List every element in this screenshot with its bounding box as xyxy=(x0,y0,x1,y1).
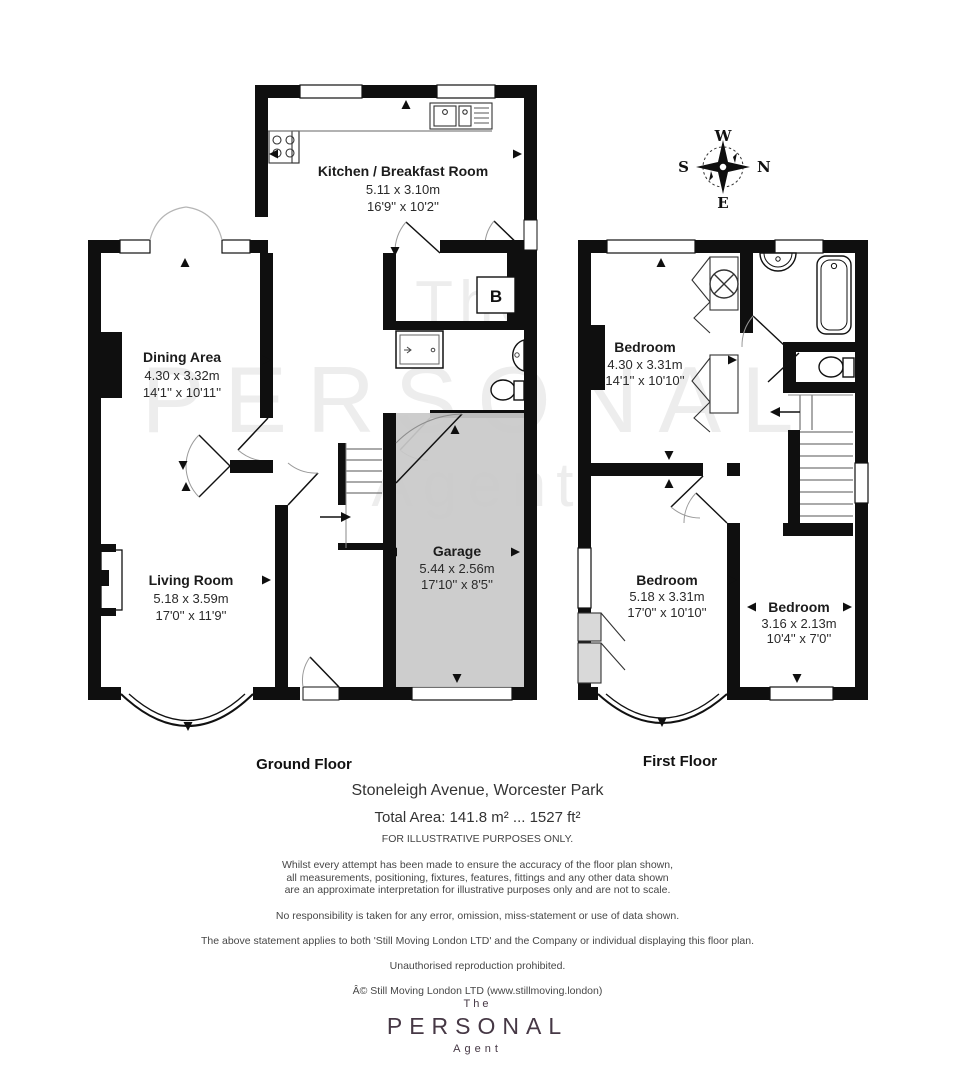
first-floor-plan xyxy=(578,240,868,727)
stairs-first xyxy=(770,395,853,536)
wardrobe-icons xyxy=(692,257,738,432)
stairs-down-arrow xyxy=(770,407,780,417)
logo-personal: PERSONAL xyxy=(0,1013,955,1040)
svg-text:4.30 x 3.32m: 4.30 x 3.32m xyxy=(144,368,219,383)
svg-text:14'1'' x 10'10'': 14'1'' x 10'10'' xyxy=(605,373,684,388)
disclaimer-responsibility: No responsibility is taken for any error… xyxy=(0,910,955,922)
stairs-ground xyxy=(320,443,386,550)
svg-text:5.11 x 3.10m: 5.11 x 3.10m xyxy=(366,182,440,197)
disclaimer-paragraph: Whilst every attempt has been made to en… xyxy=(0,859,955,897)
svg-text:17'0'' x 10'10'': 17'0'' x 10'10'' xyxy=(627,605,706,620)
door-kitchen-hall xyxy=(395,222,440,253)
boiler-room xyxy=(383,253,524,330)
chimney-breast-first xyxy=(591,325,605,390)
label-boiler: B xyxy=(490,287,502,306)
copyright-line: Â© Still Moving London LTD (www.stillmov… xyxy=(0,985,955,997)
compass-w: W xyxy=(714,127,733,145)
sink-icon xyxy=(513,340,524,371)
svg-text:17'10'' x 8'5'': 17'10'' x 8'5'' xyxy=(421,577,493,592)
compass-e: E xyxy=(717,194,728,212)
label-dining: Dining Area xyxy=(143,349,221,365)
door-bedroom2 xyxy=(684,493,727,523)
logo-agent: Agent xyxy=(0,1043,955,1055)
bay-window-ground xyxy=(121,694,253,726)
svg-text:5.18 x 3.59m: 5.18 x 3.59m xyxy=(153,591,228,606)
personal-agent-logo: The PERSONAL Agent xyxy=(0,998,955,1055)
label-bedroom2: Bedroom xyxy=(636,572,697,588)
label-living: Living Room xyxy=(149,572,234,588)
svg-text:4.30 x 3.31m: 4.30 x 3.31m xyxy=(607,357,682,372)
garage-door xyxy=(412,687,512,700)
double-doors-dining-living xyxy=(186,435,230,497)
svg-text:17'0'' x 11'9'': 17'0'' x 11'9'' xyxy=(155,608,226,623)
ground-floor-label: Ground Floor xyxy=(256,756,352,773)
svg-text:16'9'' x 10'2'': 16'9'' x 10'2'' xyxy=(367,199,439,214)
label-kitchen: Kitchen / Breakfast Room xyxy=(318,163,488,179)
logo-the: The xyxy=(0,998,955,1010)
compass-n: N xyxy=(757,158,771,176)
door-bedroom1 xyxy=(671,476,703,518)
floorplan-page: The PERSONAL Agent xyxy=(0,0,955,1080)
svg-text:14'1'' x 10'11'': 14'1'' x 10'11'' xyxy=(143,385,221,400)
fireplace xyxy=(101,544,122,616)
disclaimer-reproduction: Unauthorised reproduction prohibited. xyxy=(0,960,955,972)
compass-s: S xyxy=(678,158,689,176)
svg-text:3.16 x 2.13m: 3.16 x 2.13m xyxy=(761,616,836,631)
shower-icon xyxy=(396,331,443,368)
total-area: Total Area: 141.8 m² ... 1527 ft² xyxy=(0,809,955,826)
toilet-icon xyxy=(491,380,524,400)
bathroom-sink-icon xyxy=(760,253,796,271)
illustrative-note: FOR ILLUSTRATIVE PURPOSES ONLY. xyxy=(0,833,955,845)
bath-icon xyxy=(817,256,851,334)
wardrobe-icons-bedroom2 xyxy=(578,613,625,683)
label-bedroom3: Bedroom xyxy=(768,599,829,615)
door-living-hall xyxy=(288,463,318,505)
svg-text:5.44 x 2.56m: 5.44 x 2.56m xyxy=(419,561,494,576)
wc-toilet-icon xyxy=(819,357,854,377)
first-floor-label: First Floor xyxy=(643,753,717,770)
compass-rose: W N S E xyxy=(678,127,771,212)
label-bedroom1: Bedroom xyxy=(614,339,675,355)
chimney-breast xyxy=(101,332,122,398)
svg-text:10'4'' x 7'0'': 10'4'' x 7'0'' xyxy=(767,631,832,646)
french-doors xyxy=(150,207,222,240)
ground-floor-plan xyxy=(88,85,537,731)
stove-icon xyxy=(269,131,299,163)
kitchen-sink-icon xyxy=(430,103,492,129)
front-door xyxy=(303,657,339,687)
door-dining-hall xyxy=(238,418,268,461)
label-garage: Garage xyxy=(433,543,481,559)
floorplan-drawing: W N S E Kitchen / Breakfast Room 5.11 x … xyxy=(0,0,955,780)
footer: Stoneleigh Avenue, Worcester Park Total … xyxy=(0,778,955,997)
svg-text:5.18 x 3.31m: 5.18 x 3.31m xyxy=(629,589,704,604)
disclaimer-statement: The above statement applies to both 'Sti… xyxy=(0,935,955,947)
address: Stoneleigh Avenue, Worcester Park xyxy=(0,782,955,800)
